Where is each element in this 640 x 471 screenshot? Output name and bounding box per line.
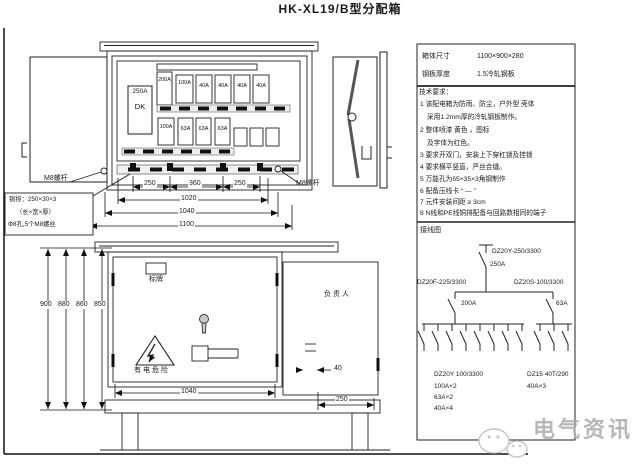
right-door-open	[333, 52, 392, 188]
branch-breakers-right	[534, 324, 568, 351]
dim-360: 360	[188, 180, 202, 188]
main-switch-rating: 250A	[128, 89, 152, 95]
right-group-model: DZ15 40T/290	[527, 371, 569, 379]
breaker-label: 63A	[178, 126, 193, 132]
breaker-label: 40A	[196, 83, 212, 89]
dim-height-860: 860	[75, 301, 89, 309]
watermark-text: 电气资讯	[533, 426, 633, 434]
tech-note-line: 4 要求横平竖直，严丝合缝。	[420, 164, 506, 171]
right-branch-model: DZ20S-100/3300	[514, 279, 564, 287]
bolt-callout-right: M8螺杆	[296, 180, 320, 188]
tech-note-line: 8 N线和PE线铜排配备与回路数相同的端子	[420, 210, 546, 217]
owner-label: 负责人	[324, 291, 351, 299]
tech-note-line: 3 要求开双门，安装上下穿杠锁及挂锁	[420, 152, 533, 159]
spec-value-thickness: 1.5冷轧钢板	[477, 71, 515, 79]
left-branch-rating: 200A	[461, 300, 476, 308]
dim-1100: 1100	[178, 221, 195, 229]
breaker-label: 200A	[157, 77, 172, 83]
left-group-rating: 63A×2	[434, 394, 453, 402]
front-view-body	[95, 242, 390, 450]
left-group-model: DZ20Y 100/3300	[434, 371, 483, 379]
main-breaker-model: DZ20Y-250/3300	[492, 248, 541, 256]
right-branch-rating: 63A	[556, 300, 568, 308]
tech-notes-title: 技术要求：	[419, 89, 452, 96]
bolt-callout-left: M8螺杆	[44, 175, 68, 183]
dim-height-900: 900	[39, 301, 53, 309]
breaker-label: 40A	[215, 83, 231, 89]
breaker-label: 40A	[234, 83, 250, 89]
breaker-boxes-bottom-row	[158, 118, 279, 146]
breaker-label: 100A	[158, 124, 174, 130]
dim-40: 40	[333, 365, 343, 373]
dim-250-depth: 250	[335, 396, 349, 404]
left-group-rating: 40A×4	[434, 405, 453, 413]
left-branch-model: DZ20F-225/3300	[417, 279, 466, 287]
dim-1040-front: 1040	[180, 388, 198, 396]
wechat-icon	[479, 429, 527, 457]
danger-triangle-icon	[136, 336, 174, 365]
breaker-label: 40A	[253, 83, 269, 89]
page-title: HK-XL19/B型分配箱	[220, 5, 460, 13]
danger-label: 有电危险	[134, 367, 170, 375]
spec-label-thickness: 钢板厚度	[422, 71, 450, 79]
busbar-note-line1: 铜排：250×30×3	[9, 196, 56, 203]
branch-breakers-left	[418, 324, 522, 351]
lock-bracket	[362, 146, 371, 159]
front-dimensions	[40, 248, 374, 410]
main-breaker-rating: 250A	[490, 261, 505, 269]
dim-1020: 1020	[180, 195, 198, 203]
right-group-rating: 40A×3	[527, 383, 546, 391]
technical-drawing	[0, 0, 640, 471]
tech-note-line: 5 万能孔为δ5×35×3角钢制作	[420, 176, 506, 183]
dim-250-left: 250	[143, 180, 157, 188]
busbar-top	[157, 105, 290, 112]
tech-note-line: 1 该配电箱为防雨、防尘，户外型 壳体	[420, 101, 534, 108]
dim-height-880: 880	[57, 301, 71, 309]
breaker-label: 63A	[196, 126, 211, 132]
spec-label-size: 箱体尺寸	[422, 53, 450, 61]
nameplate-label: 标牌	[144, 276, 168, 284]
bottom-terminal-strip	[101, 163, 298, 174]
spec-value-size: 1100×900×280	[477, 53, 524, 61]
tech-note-line: 6 配备压线卡 “ — ”	[420, 188, 476, 195]
keyhole-icon	[200, 315, 209, 334]
left-door-open	[22, 57, 107, 182]
nameplate-rect	[146, 263, 166, 274]
drawing-canvas: HK-XL19/B型分配箱 250A DK 200A 100A 40A 40A …	[0, 0, 640, 471]
main-switch-label: DK	[128, 104, 152, 110]
tech-note-line: 7 元件安装间距 ≥ 3cm	[420, 199, 486, 206]
busbar-bottom	[122, 148, 234, 155]
breaker-label: 63A	[215, 126, 230, 132]
dim-250-right: 250	[233, 180, 247, 188]
busbar-note-line3: Φ8孔,5个M8螺丝	[8, 221, 56, 228]
left-group-rating: 100A×2	[434, 383, 457, 391]
tech-note-line: 2 整体喷漆 黄色 ，图标	[420, 127, 489, 134]
wiring-title: 接线图	[420, 227, 441, 235]
dim-1040-top: 1040	[178, 208, 196, 216]
tech-note-line: 及字体为红色。	[427, 140, 474, 147]
rain-hood	[100, 42, 318, 51]
tech-note-line: 采用1.2mm厚的冷轧钢板制作。	[427, 114, 521, 121]
dim-height-850: 850	[93, 301, 107, 309]
busbar-note-line2: （长×宽×厚）	[16, 209, 55, 216]
door-handle	[192, 344, 316, 361]
breaker-label: 100A	[176, 80, 193, 86]
